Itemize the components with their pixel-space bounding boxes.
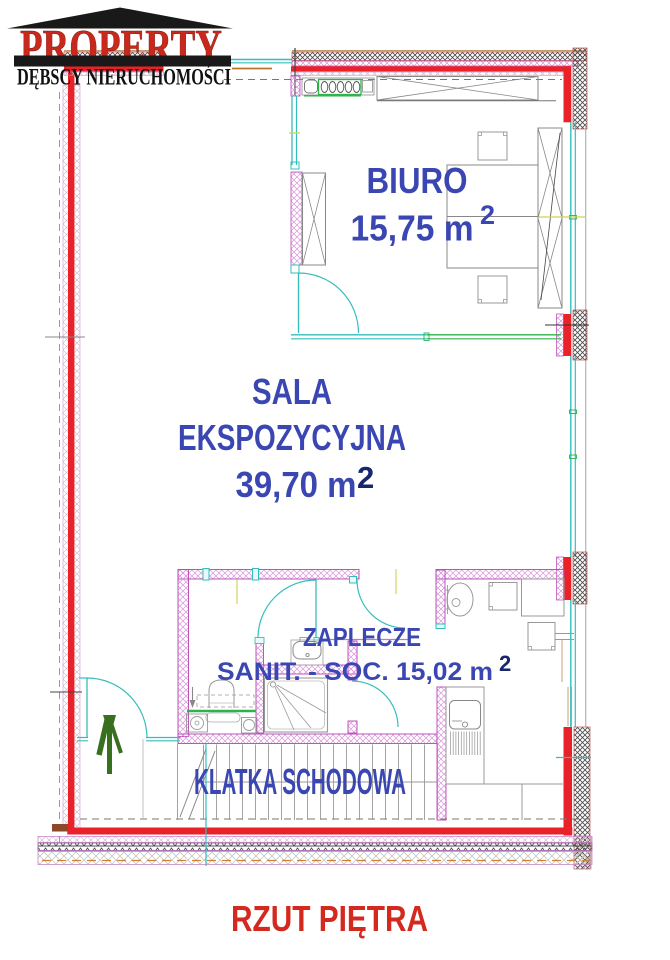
svg-text:EKSPOZYCYJNA: EKSPOZYCYJNA: [178, 417, 406, 458]
svg-text:ZAPLECZE: ZAPLECZE: [303, 622, 421, 652]
svg-text:2: 2: [357, 460, 374, 495]
svg-text:2: 2: [480, 200, 495, 230]
svg-text:SANIT. - SOC. 15,02 m: SANIT. - SOC. 15,02 m: [217, 658, 493, 686]
svg-text:SALA: SALA: [252, 371, 332, 412]
svg-text:RZUT PIĘTRA: RZUT PIĘTRA: [231, 898, 428, 939]
svg-text:2: 2: [499, 651, 511, 676]
svg-text:DĘBSCY NIERUCHOMOŚCI: DĘBSCY NIERUCHOMOŚCI: [17, 64, 231, 90]
svg-text:BIURO: BIURO: [367, 160, 468, 201]
svg-text:15,75 m: 15,75 m: [351, 208, 474, 249]
svg-text:KLATKA SCHODOWA: KLATKA SCHODOWA: [194, 761, 406, 802]
svg-text:39,70 m: 39,70 m: [236, 464, 357, 505]
